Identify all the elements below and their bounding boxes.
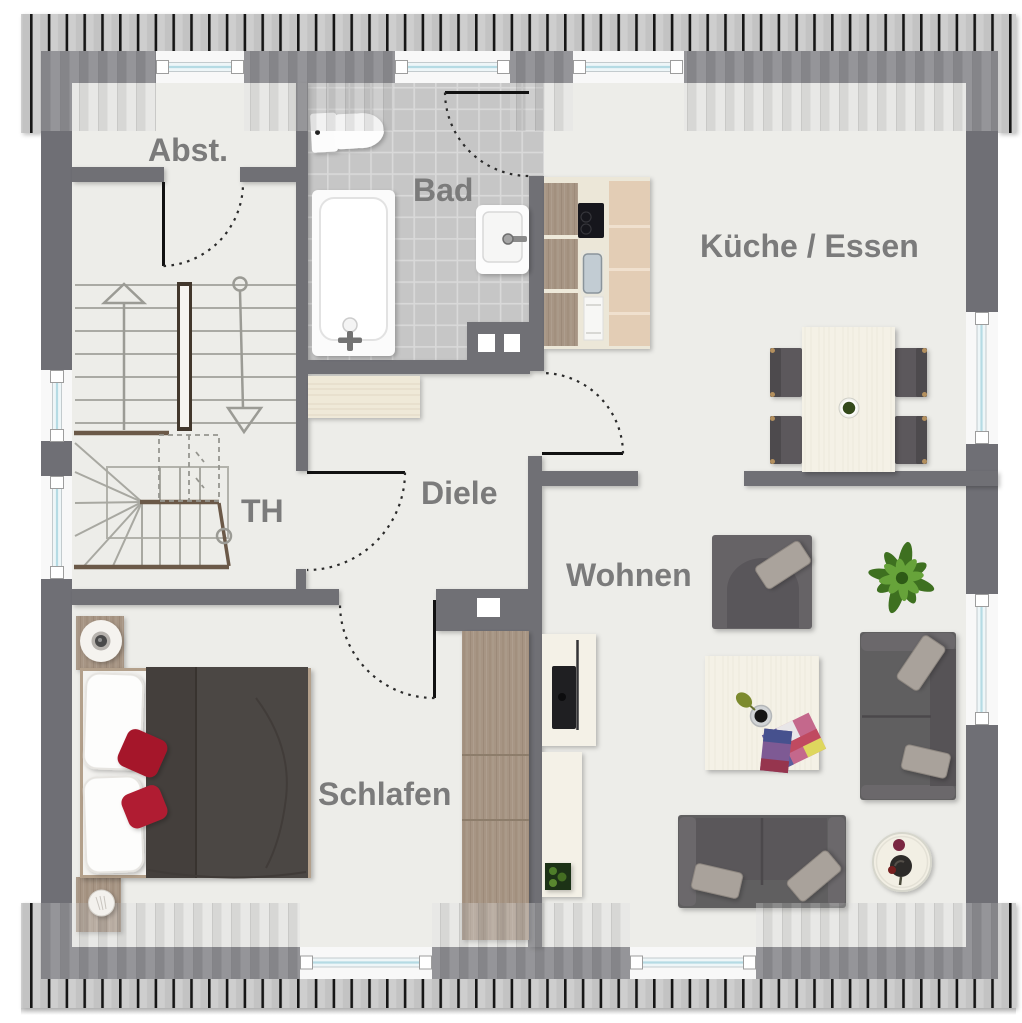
- svg-text:Küche / Essen: Küche / Essen: [700, 228, 919, 264]
- svg-text:Wohnen: Wohnen: [566, 557, 692, 593]
- svg-text:TH: TH: [241, 493, 284, 529]
- svg-text:Abst.: Abst.: [148, 132, 228, 168]
- svg-text:Bad: Bad: [413, 172, 473, 208]
- svg-text:Schlafen: Schlafen: [318, 776, 451, 812]
- svg-text:Diele: Diele: [421, 475, 497, 511]
